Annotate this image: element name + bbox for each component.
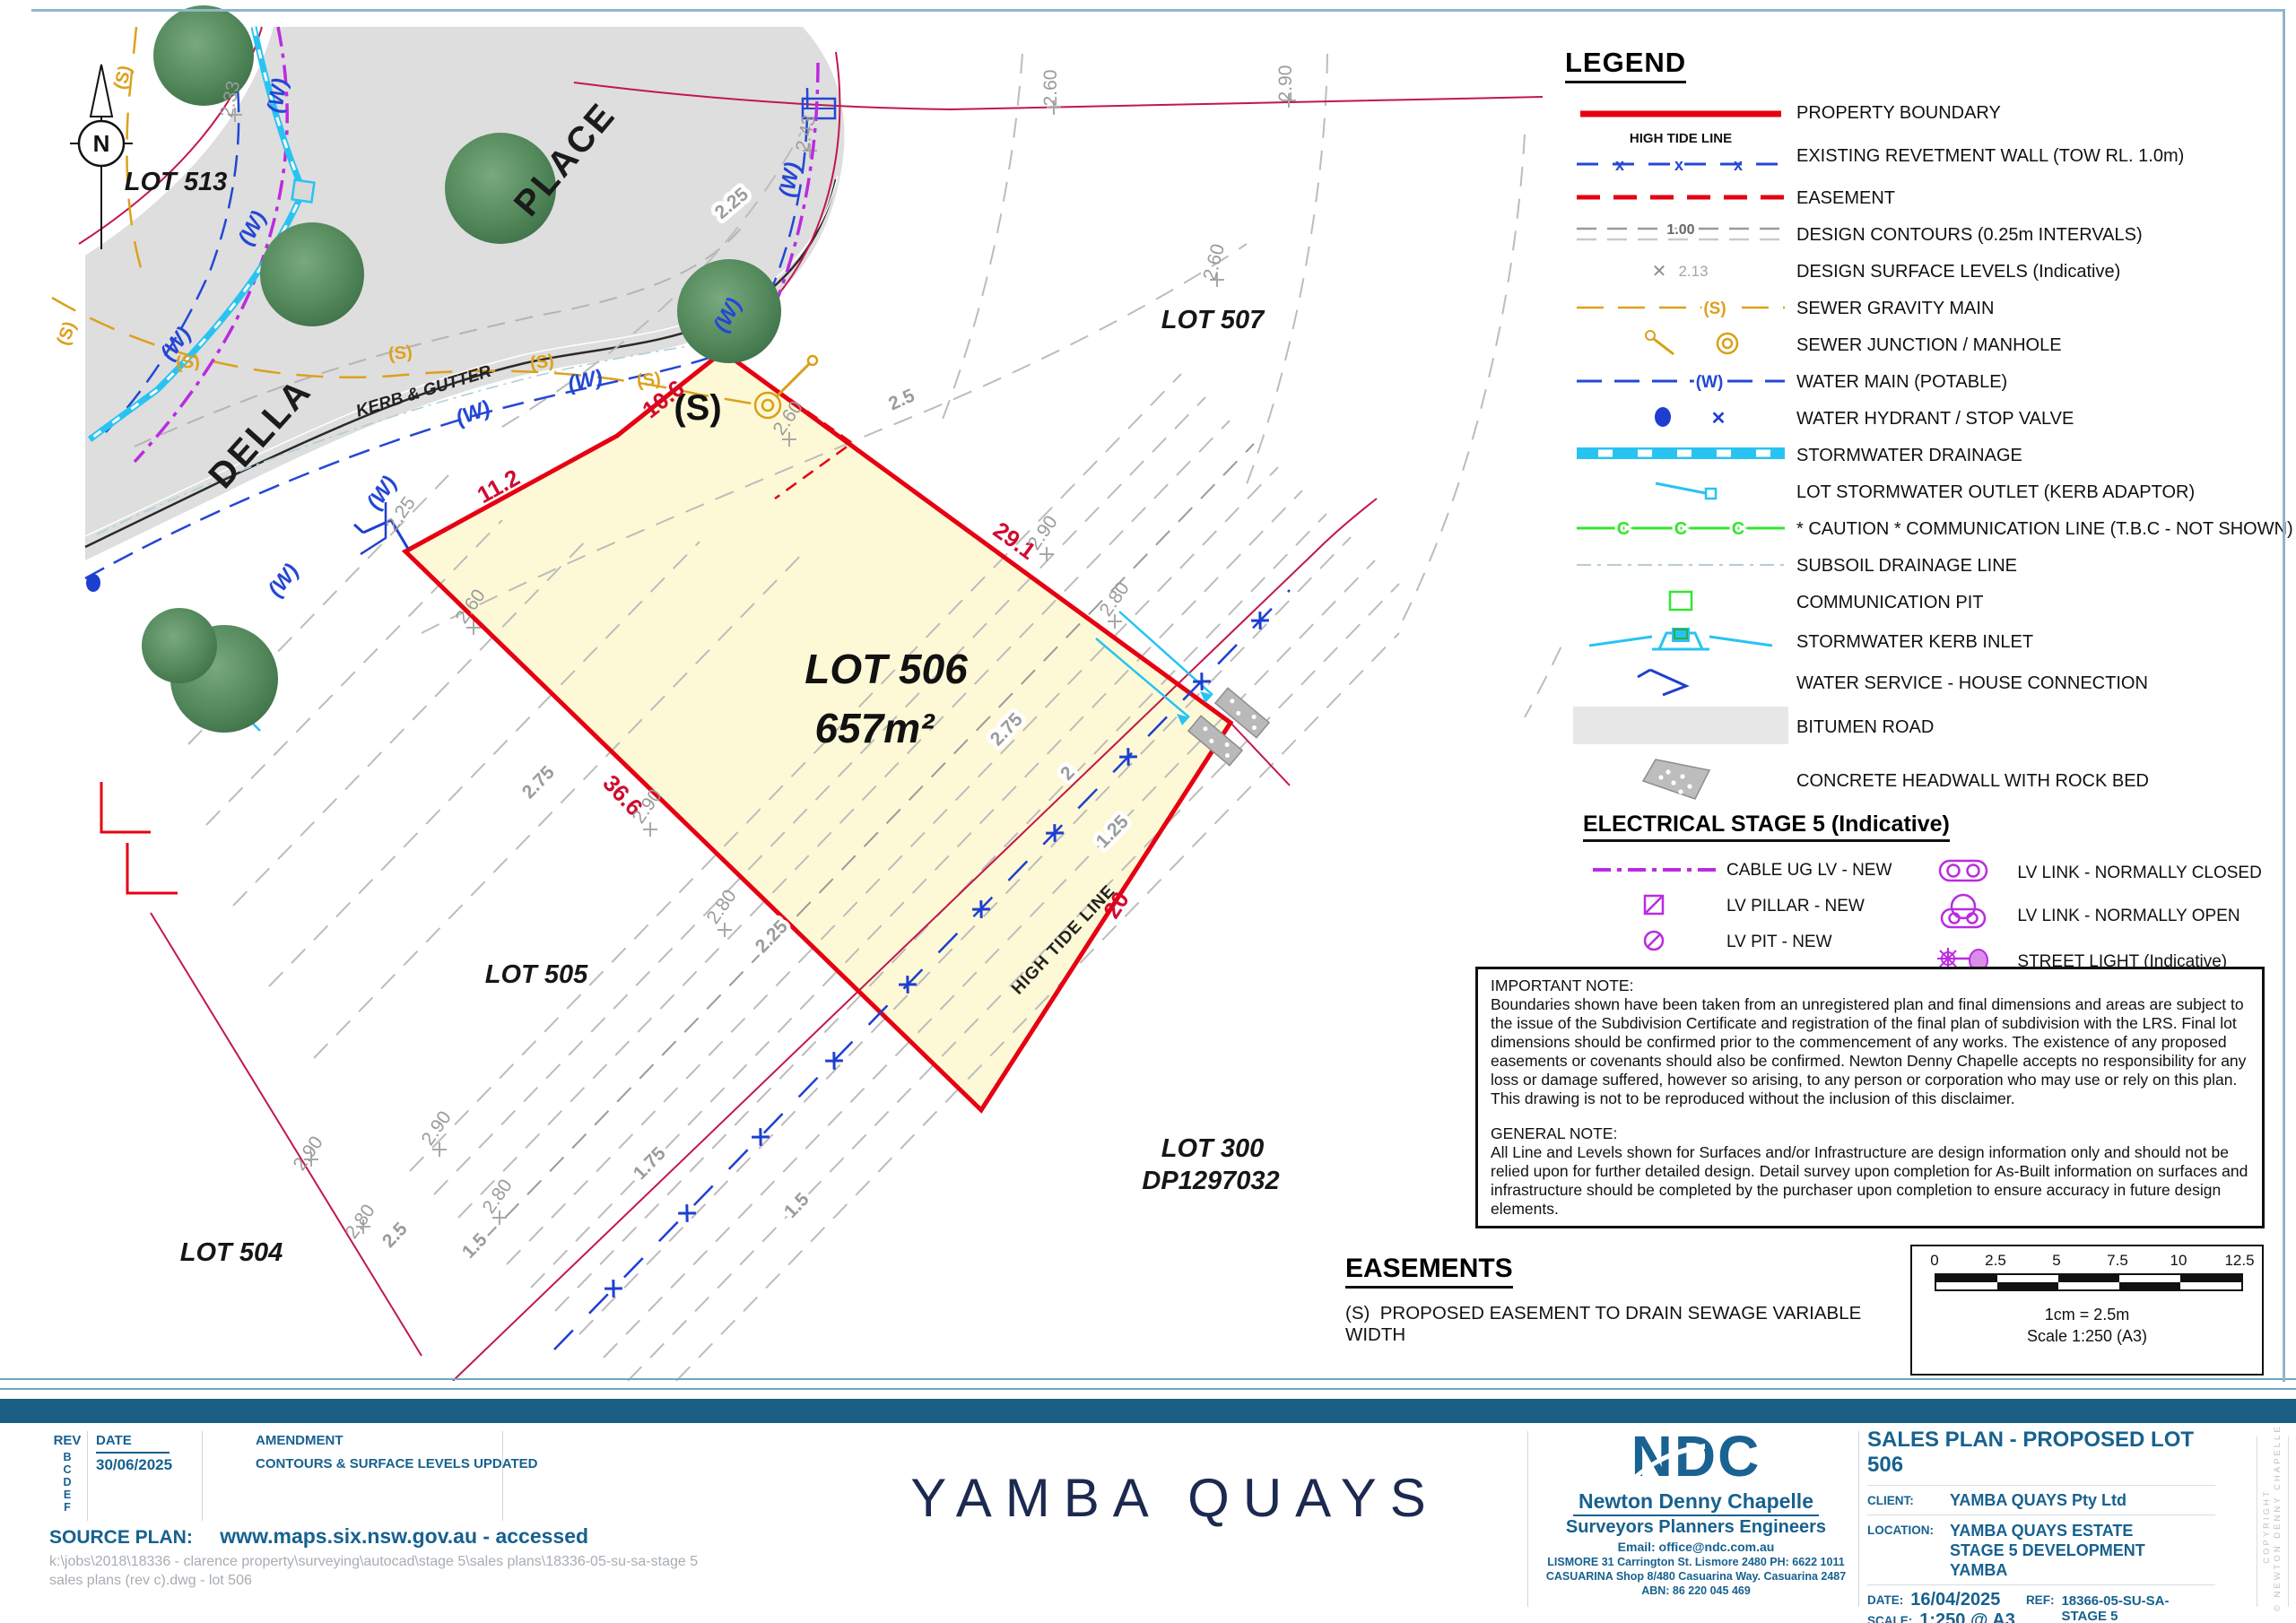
- rev-header: REV: [49, 1433, 85, 1448]
- source-plan-value: www.maps.six.nsw.gov.au - accessed: [220, 1524, 588, 1549]
- important-note-body: Boundaries shown have been taken from an…: [1491, 995, 2249, 1108]
- plan-label: 2.60: [1040, 70, 1061, 107]
- water-service-house-connection-icon: [1565, 664, 1796, 703]
- scale-bar-ticks: 02.557.51012.5: [1935, 1252, 2239, 1273]
- amendment-header: AMENDMENT: [256, 1433, 552, 1448]
- stormwater-kerb-inlet-icon: [1565, 622, 1796, 663]
- legend-label: WATER HYDRANT / STOP VALVE: [1796, 409, 2074, 430]
- scale-bar: 02.557.51012.5 1cm = 2.5m Scale 1:250 (A…: [1910, 1245, 2264, 1376]
- legend-row: 1.00DESIGN CONTOURS (0.25m INTERVALS): [1565, 218, 2283, 253]
- design-contours-icon: 1.00: [1565, 218, 1796, 253]
- legend-label: * CAUTION * COMMUNICATION LINE (T.B.C - …: [1796, 519, 2293, 540]
- plan-label: (W): [264, 560, 304, 602]
- easements-title: EASEMENTS: [1345, 1254, 1883, 1289]
- legend-label: DESIGN SURFACE LEVELS (Indicative): [1796, 262, 2120, 282]
- general-note-title: GENERAL NOTE:: [1491, 1124, 2249, 1143]
- communication-line-icon: CCC: [1565, 512, 1796, 547]
- rev-date: 30/06/2025: [96, 1456, 230, 1474]
- svg-text:x: x: [1615, 156, 1624, 174]
- legend-label: CONCRETE HEADWALL WITH ROCK BED: [1796, 771, 2149, 792]
- electrical-label: LV PIT - NEW: [1726, 933, 1832, 952]
- legend-label: BITUMEN ROAD: [1796, 717, 1934, 738]
- plan-sheet: DELLAPLACELOT 513LOT 507LOT 505LOT 504LO…: [0, 0, 2296, 1623]
- svg-text:C: C: [1617, 519, 1630, 539]
- legend-label: STORMWATER DRAINAGE: [1796, 446, 2022, 466]
- electrical-legend-panel: ELECTRICAL STAGE 5 (Indicative) CABLE UG…: [1583, 811, 2274, 985]
- plan-label: 2.90: [418, 1107, 456, 1150]
- plan-label: (W): [566, 365, 604, 395]
- legend-label: PROPERTY BOUNDARY: [1796, 103, 2001, 124]
- north-arrow: [70, 65, 133, 249]
- location-value: YAMBA QUAYS ESTATESTAGE 5 DEVELOPMENTYAM…: [1950, 1521, 2145, 1580]
- notes-box: IMPORTANT NOTE: Boundaries shown have be…: [1475, 967, 2265, 1228]
- legend-row: EASEMENT: [1565, 181, 2283, 216]
- bitumen-road-icon: [1565, 705, 1796, 751]
- electrical-label: CABLE UG LV - NEW: [1726, 861, 1892, 881]
- svg-text:x: x: [1734, 156, 1743, 174]
- lv-pit-icon: [1583, 925, 1726, 960]
- footer-band: [0, 1399, 2296, 1423]
- scale-text: Scale 1:250 (A3): [1912, 1325, 2262, 1347]
- plan-label: (S): [529, 352, 555, 374]
- electrical-label: LV LINK - NORMALLY OPEN: [2017, 907, 2239, 926]
- plan-label: (S): [636, 369, 662, 392]
- subsoil-drainage-icon: [1565, 549, 1796, 584]
- water-hydrant-stop-valve-icon: ✕: [1565, 402, 1796, 437]
- legend-row: CONCRETE HEADWALL WITH ROCK BED: [1565, 752, 2283, 811]
- stormwater-drainage-icon: [1565, 438, 1796, 473]
- plan-label: 2.60: [1199, 242, 1229, 282]
- legend-label: WATER MAIN (POTABLE): [1796, 372, 2007, 393]
- legend-row: LOT STORMWATER OUTLET (KERB ADAPTOR): [1565, 475, 2283, 510]
- legend-panel: LEGEND PROPERTY BOUNDARYHIGH TIDE LINExx…: [1565, 47, 2283, 876]
- divider-line-top: [0, 1378, 2296, 1380]
- yamba-quays-logo: YAMBA QUAYS: [843, 1467, 1507, 1529]
- scale-tick: 7.5: [2098, 1252, 2137, 1270]
- electrical-row: LV PIT - NEW: [1583, 924, 1892, 960]
- svg-text:(S): (S): [1703, 299, 1726, 318]
- plan-label: 2.80: [1096, 578, 1134, 621]
- legend-row: CCC* CAUTION * COMMUNICATION LINE (T.B.C…: [1565, 512, 2283, 547]
- legend-label: EASEMENT: [1796, 188, 1895, 209]
- legend-label: COMMUNICATION PIT: [1796, 593, 1984, 613]
- scale-tick: 10: [2159, 1252, 2198, 1270]
- amendment-value: CONTOURS & SURFACE LEVELS UPDATED: [256, 1456, 552, 1471]
- plan-label: LOT 513: [125, 168, 227, 196]
- plan-label: LOT 506: [804, 646, 968, 692]
- ndc-abn: ABN: 86 220 045 469: [1539, 1584, 1853, 1598]
- ndc-tagline: Surveyors Planners Engineers: [1539, 1517, 1853, 1538]
- file-path: k:\jobs\2018\18336 - clarence property\s…: [49, 1552, 731, 1590]
- ndc-email: Email: office@ndc.com.au: [1539, 1540, 1853, 1555]
- electrical-title: ELECTRICAL STAGE 5 (Indicative): [1583, 811, 2274, 842]
- water-main-icon: (W): [1565, 365, 1796, 400]
- copyright-line2: © NEWTON DENNY CHAPELLE: [2273, 1441, 2283, 1611]
- legend-row: STORMWATER KERB INLET: [1565, 622, 2283, 663]
- electrical-row: LV PILLAR - NEW: [1583, 889, 1892, 924]
- legend-row: ✕WATER HYDRANT / STOP VALVE: [1565, 402, 2283, 437]
- ref-value: 18366-05-SU-SA-STAGE 5: [2061, 1590, 2206, 1623]
- property-boundary-icon: [1565, 96, 1796, 131]
- plan-label: (S): [175, 352, 201, 374]
- legend-row: PROPERTY BOUNDARY: [1565, 96, 2283, 131]
- scale-label: SCALE:: [1867, 1610, 1912, 1623]
- legend-row: HIGH TIDE LINExxxEXISTING REVETMENT WALL…: [1565, 133, 2283, 179]
- legend-row: SUBSOIL DRAINAGE LINE: [1565, 549, 2283, 584]
- legend-row: BITUMEN ROAD: [1565, 705, 2283, 751]
- plan-label: 2.5: [378, 1219, 412, 1252]
- general-note-body: All Line and Levels shown for Surfaces a…: [1491, 1143, 2249, 1219]
- lot-stormwater-outlet-icon: [1565, 475, 1796, 510]
- rev-separator-1: [87, 1431, 88, 1521]
- plan-label: LOT 505: [485, 960, 588, 989]
- legend-row: (S)SEWER GRAVITY MAIN: [1565, 291, 2283, 326]
- svg-text:C: C: [1732, 519, 1744, 539]
- legend-row: WATER SERVICE - HOUSE CONNECTION: [1565, 664, 2283, 703]
- plan-label: (S): [387, 343, 413, 365]
- client-value: YAMBA QUAYS Pty Ltd: [1950, 1491, 2126, 1510]
- date-label: DATE:: [1867, 1590, 1903, 1610]
- date-header: DATE: [96, 1433, 230, 1448]
- plan-label: 2.5: [885, 385, 918, 414]
- svg-text:1.00: 1.00: [1666, 222, 1694, 238]
- legend-row: SEWER JUNCTION / MANHOLE: [1565, 328, 2283, 363]
- legend-label: SEWER GRAVITY MAIN: [1796, 299, 1994, 319]
- electrical-row: LV LINK - NORMALLY CLOSED: [1917, 853, 2261, 893]
- location-label: LOCATION:: [1867, 1521, 1950, 1580]
- plan-label: 2.75: [518, 762, 559, 803]
- scale-tick: 5: [2037, 1252, 2076, 1270]
- lv-pillar-icon: [1583, 890, 1726, 924]
- ndc-address-2: CASUARINA Shop 8/480 Casuarina Way. Casu…: [1539, 1569, 1853, 1584]
- legend-label: SEWER JUNCTION / MANHOLE: [1796, 335, 2062, 356]
- client-label: CLIENT:: [1867, 1491, 1950, 1510]
- legend-row: ✕2.13DESIGN SURFACE LEVELS (Indicative): [1565, 255, 2283, 290]
- ndc-logo-block: NDC Newton Denny Chapelle Surveyors Plan…: [1539, 1429, 1853, 1598]
- revetment-wall-icon: HIGH TIDE LINExxx: [1565, 133, 1796, 179]
- scale-ratio: 1cm = 2.5m: [1912, 1304, 2262, 1325]
- easements-section: EASEMENTS (S) PROPOSED EASEMENT TO DRAIN…: [1345, 1254, 1883, 1346]
- legend-row: (W)WATER MAIN (POTABLE): [1565, 365, 2283, 400]
- electrical-label: LV PILLAR - NEW: [1726, 897, 1865, 916]
- legend-row: STORMWATER DRAINAGE: [1565, 438, 2283, 473]
- water-hydrant-symbol: [86, 574, 100, 592]
- footer: REV BCDEF DATE 30/06/2025 AMENDMENT CONT…: [0, 1424, 2296, 1623]
- plan-label: 657m²: [815, 705, 936, 751]
- legend-label: SUBSOIL DRAINAGE LINE: [1796, 556, 2017, 577]
- title-block: SALES PLAN - PROPOSED LOT 506 CLIENT: YA…: [1867, 1428, 2215, 1623]
- plan-label: 1.5: [458, 1229, 491, 1263]
- svg-text:✕: ✕: [1711, 409, 1726, 429]
- plan-label: DP1297032: [1142, 1167, 1279, 1195]
- svg-text:(W): (W): [1696, 373, 1724, 392]
- plan-label: (S): [110, 64, 135, 91]
- communication-pit-icon: [1565, 586, 1796, 621]
- drawing-title: SALES PLAN - PROPOSED LOT 506: [1867, 1428, 2215, 1485]
- legend-label: EXISTING REVETMENT WALL (TOW RL. 1.0m): [1796, 146, 2184, 167]
- footer-separator-1: [1527, 1431, 1528, 1607]
- lv-link-open-icon: [1917, 893, 2017, 939]
- scale-tick: 0: [1915, 1252, 1954, 1270]
- svg-text:NDC: NDC: [1631, 1429, 1761, 1485]
- electrical-row: LV LINK - NORMALLY OPEN: [1917, 893, 2261, 939]
- svg-text:C: C: [1674, 519, 1687, 539]
- legend-label: STORMWATER KERB INLET: [1796, 632, 2033, 653]
- electrical-row: CABLE UG LV - NEW: [1583, 853, 1892, 889]
- divider-line-bottom: [0, 1388, 2296, 1390]
- svg-text:✕: ✕: [1652, 262, 1667, 282]
- plan-label: 2.90: [290, 1133, 327, 1175]
- plan-label: 2.90: [1275, 65, 1296, 102]
- copyright-line1: COPYRIGHT: [2262, 1441, 2273, 1611]
- plan-label: 2.80: [703, 886, 741, 928]
- scale-bar-strip: [1935, 1273, 2243, 1291]
- easement-icon: [1565, 181, 1796, 216]
- source-plan-label: SOURCE PLAN:: [49, 1527, 193, 1549]
- legend-label: LOT STORMWATER OUTLET (KERB ADAPTOR): [1796, 482, 2195, 503]
- rev-letters: BCDEF: [49, 1451, 85, 1514]
- legend-title: LEGEND: [1565, 47, 2283, 83]
- footer-separator-2: [1858, 1431, 1859, 1607]
- plan-label: LOT 300: [1161, 1134, 1264, 1163]
- ndc-name: Newton Denny Chapelle: [1573, 1489, 1819, 1516]
- plan-label: 2.80: [342, 1201, 379, 1243]
- electrical-label: LV LINK - NORMALLY CLOSED: [2017, 864, 2261, 883]
- design-surface-levels-icon: ✕2.13: [1565, 255, 1796, 290]
- plan-label: (W): [453, 396, 494, 431]
- copyright-strip: COPYRIGHT © NEWTON DENNY CHAPELLE: [2257, 1436, 2289, 1607]
- legend-label: WATER SERVICE - HOUSE CONNECTION: [1796, 673, 2148, 694]
- scale-value: 1:250 @ A3: [1919, 1610, 2015, 1623]
- svg-text:x: x: [1674, 156, 1683, 174]
- sewer-junction-manhole-icon: [1565, 328, 1796, 363]
- sewer-gravity-main-icon: (S): [1565, 291, 1796, 326]
- legend-row: COMMUNICATION PIT: [1565, 586, 2283, 621]
- scale-tick: 12.5: [2220, 1252, 2259, 1270]
- legend-label: DESIGN CONTOURS (0.25m INTERVALS): [1796, 225, 2143, 246]
- plan-label: N: [93, 130, 110, 157]
- concrete-headwall-icon: [1565, 752, 1796, 811]
- plan-label: (S): [53, 319, 80, 349]
- plan-label: LOT 504: [180, 1238, 283, 1267]
- svg-text:2.13: 2.13: [1678, 263, 1708, 280]
- source-plan: SOURCE PLAN: www.maps.six.nsw.gov.au - a…: [49, 1524, 731, 1590]
- scale-tick: 2.5: [1976, 1252, 2015, 1270]
- cable-ug-lv-icon: [1583, 854, 1726, 889]
- plan-label: LOT 507: [1161, 306, 1265, 334]
- ndc-address-1: LISMORE 31 Carrington St. Lismore 2480 P…: [1539, 1555, 1853, 1569]
- important-note-title: IMPORTANT NOTE:: [1491, 976, 2249, 995]
- ndc-logo: NDC: [1561, 1429, 1831, 1485]
- lv-link-closed-icon: [1917, 853, 2017, 893]
- date-value: 16/04/2025: [1910, 1590, 2000, 1610]
- easement-item: (S) PROPOSED EASEMENT TO DRAIN SEWAGE VA…: [1345, 1303, 1883, 1346]
- ref-label: REF:: [2026, 1590, 2055, 1623]
